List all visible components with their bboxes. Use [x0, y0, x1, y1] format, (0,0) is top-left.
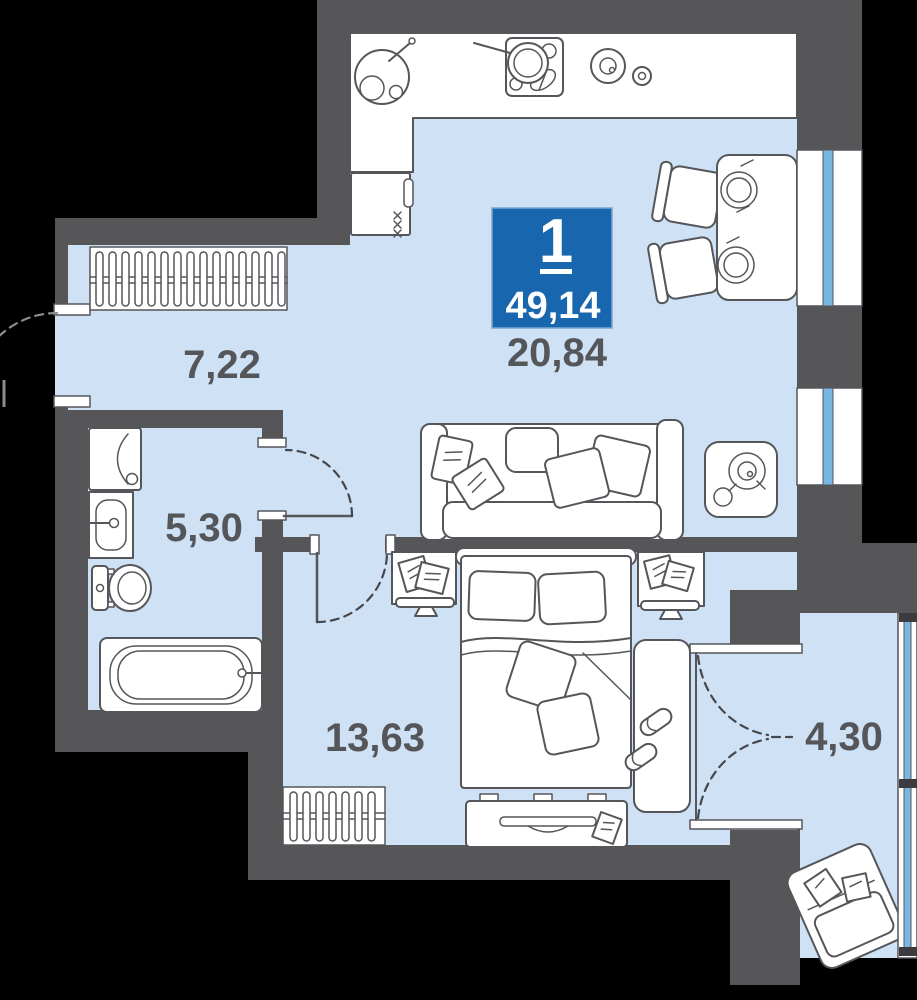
pot-icon [591, 49, 625, 83]
bed-icon [456, 548, 636, 788]
jar-icon [633, 67, 651, 85]
chair-icon [647, 234, 719, 304]
wall-hallway-bathroom [68, 410, 262, 428]
badge-divider [540, 269, 572, 274]
badge-rooms-count: 1 [539, 207, 573, 276]
wall-bedroom-top [255, 537, 317, 552]
balcony-area-label: 4,30 [805, 715, 883, 759]
sofa-icon [421, 420, 683, 540]
balcony-sill [690, 644, 802, 653]
wall-left-upper [55, 245, 68, 307]
radiator-icon [283, 787, 385, 845]
nightstand-icon [638, 552, 704, 619]
wall-kitchen-left [317, 0, 350, 218]
side-table-icon [705, 442, 777, 517]
toilet-icon [92, 565, 151, 611]
dining-table-icon [717, 155, 797, 300]
balcony-glazing [898, 613, 917, 958]
area-badge: 1 49,14 [492, 207, 612, 328]
nightstand-icon [392, 552, 456, 616]
fridge-icon [351, 173, 413, 237]
bathroom-door-jamb [258, 511, 286, 520]
floor-plan: 1 49,14 7,22 20,84 5,30 13,63 4,30 [0, 0, 917, 1000]
floor-plan-canvas: 1 49,14 7,22 20,84 5,30 13,63 4,30 [0, 0, 917, 1000]
kitchen-living-area-label: 20,84 [507, 331, 608, 375]
entrance-jamb [54, 304, 90, 315]
badge-total-area: 49,14 [505, 285, 600, 327]
wall-hallway-top [55, 218, 350, 245]
entrance-door-swing-icon [0, 313, 57, 407]
tv-stand-icon [466, 794, 627, 847]
wall-bathroom-bottom [55, 710, 248, 752]
bathroom-door-jamb [258, 438, 286, 447]
entrance-jamb [54, 396, 90, 407]
window-icon [797, 388, 862, 485]
wall-window-pier [797, 306, 862, 388]
balcony-sill [690, 820, 802, 829]
bathtub-icon [100, 638, 262, 712]
bedroom-area-label: 13,63 [325, 716, 425, 760]
window-icon [797, 150, 862, 306]
wall-balcony-pier [730, 830, 800, 985]
bedroom-door-jamb [310, 535, 319, 554]
chair-icon [651, 161, 723, 231]
entrance-opening-floor [55, 300, 68, 406]
hallway-area-label: 7,22 [183, 343, 261, 387]
washbasin-icon [89, 492, 133, 558]
bathroom-area-label: 5,30 [165, 506, 243, 550]
wall-left-lower [55, 410, 88, 752]
washing-machine-icon [89, 428, 141, 490]
wall-bedroom-bottom [248, 845, 732, 880]
wardrobe-icon [90, 247, 287, 310]
room-balcony-floor [697, 651, 800, 823]
